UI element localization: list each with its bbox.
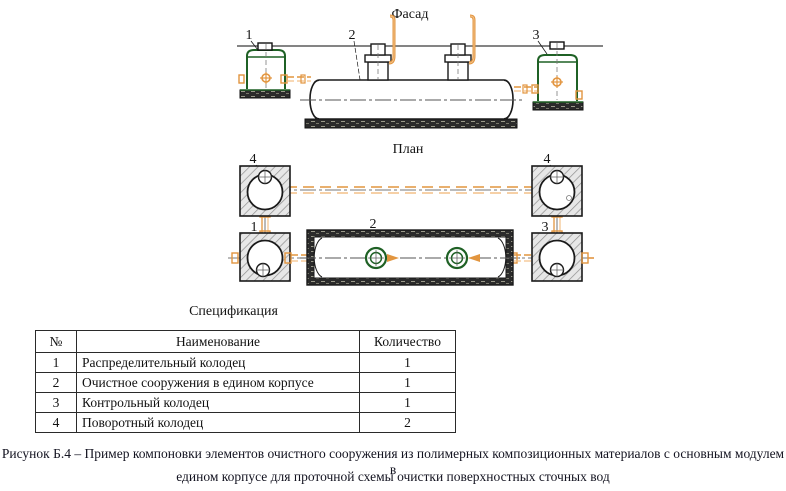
control-well-facade [514, 42, 583, 110]
control-well-plan [511, 233, 594, 281]
spec-header-row: № Наименование Количество [36, 331, 456, 353]
spec-row-num: 1 [36, 353, 77, 373]
bypass-pipe-plan [250, 184, 572, 196]
distribution-well-plan [232, 233, 308, 281]
spec-row-num: 4 [36, 413, 77, 433]
tank-neck-right [445, 44, 471, 80]
spec-row-name: Поворотный колодец [77, 413, 360, 433]
spec-header-qty: Количество [360, 331, 456, 353]
manhole-left-plan [366, 248, 386, 268]
plan-view: План 4 4 1 3 2 [228, 142, 596, 285]
tank-shell [310, 80, 513, 119]
spec-header-name: Наименование [77, 331, 360, 353]
facade-view: Фасад 1 2 3 [237, 7, 603, 128]
spec-row-num: 2 [36, 373, 77, 393]
well3-base-slab [533, 102, 583, 110]
spec-row-qty: 2 [360, 413, 456, 433]
callout-3-facade: 3 [533, 28, 548, 54]
rotary-well-plan-top-right [532, 166, 582, 216]
plan-label: План [393, 142, 424, 157]
spec-row-name: Очистное сооружения в едином корпусе [77, 373, 360, 393]
spec-header-num: № [36, 331, 77, 353]
table-row: 4 Поворотный колодец 2 [36, 413, 456, 433]
spec-row-num: 3 [36, 393, 77, 413]
figure-b4-page: Фасад 1 2 3 [0, 0, 786, 491]
tank-neck-left [365, 44, 391, 80]
spec-row-name: Распределительный колодец [77, 353, 360, 373]
distribution-well-facade [239, 43, 311, 98]
table-row: 3 Контрольный колодец 1 [36, 393, 456, 413]
main-tank-plan [300, 230, 520, 285]
main-tank-facade [300, 16, 523, 128]
treatment-plant-drawing: Фасад 1 2 3 [0, 0, 786, 300]
svg-text:4: 4 [544, 152, 551, 167]
tank-foundation-slab [305, 119, 517, 128]
spec-title: Спецификация [35, 304, 432, 320]
svg-text:4: 4 [250, 152, 257, 167]
spec-row-qty: 1 [360, 373, 456, 393]
callout-2-facade: 2 [349, 28, 362, 86]
spec-row-qty: 1 [360, 393, 456, 413]
manhole-right-plan [447, 248, 467, 268]
svg-text:2: 2 [349, 28, 356, 43]
spec-row-qty: 1 [360, 353, 456, 373]
table-row: 2 Очистное сооружения в едином корпусе 1 [36, 373, 456, 393]
well1-base-slab [240, 90, 290, 98]
facade-label: Фасад [392, 7, 429, 22]
table-row: 1 Распределительный колодец 1 [36, 353, 456, 373]
svg-text:3: 3 [533, 28, 540, 43]
svg-text:1: 1 [246, 28, 253, 43]
rotary-well-plan-top-left [240, 166, 290, 216]
well1-bolt-cap [258, 43, 272, 50]
spec-table: № Наименование Количество 1 Распределите… [35, 330, 456, 433]
figure-caption-line2: едином корпусе для проточной схемы очист… [0, 469, 786, 485]
spec-row-name: Контрольный колодец [77, 393, 360, 413]
